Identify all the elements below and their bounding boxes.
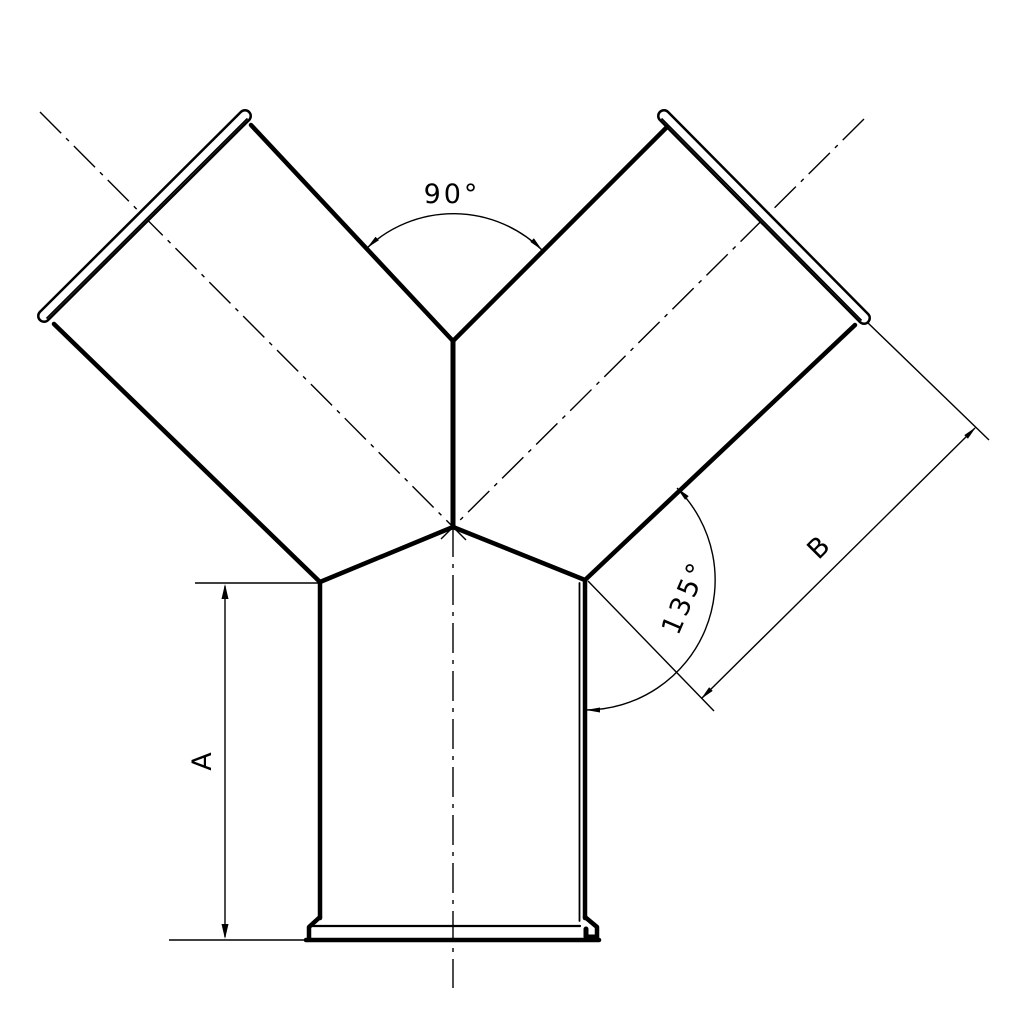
dim-a-arrow-down xyxy=(222,924,229,939)
dim-b-label: B xyxy=(801,528,838,565)
dim-b-line xyxy=(702,428,975,698)
junction-chamfer-left xyxy=(320,527,453,582)
left-branch-inner-wall xyxy=(251,125,453,341)
dim-a-label: A xyxy=(187,749,218,770)
centerline-right-branch xyxy=(441,119,864,539)
angle-135-arrow-lower xyxy=(586,708,600,713)
junction-chamfer-right xyxy=(453,527,585,580)
angle-90-arrow-right xyxy=(530,238,542,250)
angle-90-label: 90° xyxy=(424,179,481,210)
angle-135-label: 135° xyxy=(656,556,715,639)
angle-90-arrow-left xyxy=(367,237,379,248)
angle-90-dimension xyxy=(367,214,542,250)
centerline-left-branch xyxy=(40,112,466,540)
centerlines xyxy=(40,112,864,988)
left-branch-outer-wall xyxy=(54,324,320,582)
right-branch-inner-wall xyxy=(453,127,667,341)
dimension-b xyxy=(588,322,989,711)
dim-a-arrow-up xyxy=(222,584,229,599)
drawing-canvas: A B 90° 135° xyxy=(0,0,1024,1024)
angle-90-arc xyxy=(367,214,542,250)
bottom-ferrule-notch xyxy=(586,929,594,937)
dim-b-extension-upper xyxy=(867,322,989,440)
wye-fitting-drawing: A B 90° 135° xyxy=(0,0,1024,1024)
bottom-ferrule-left-lip xyxy=(309,917,320,938)
